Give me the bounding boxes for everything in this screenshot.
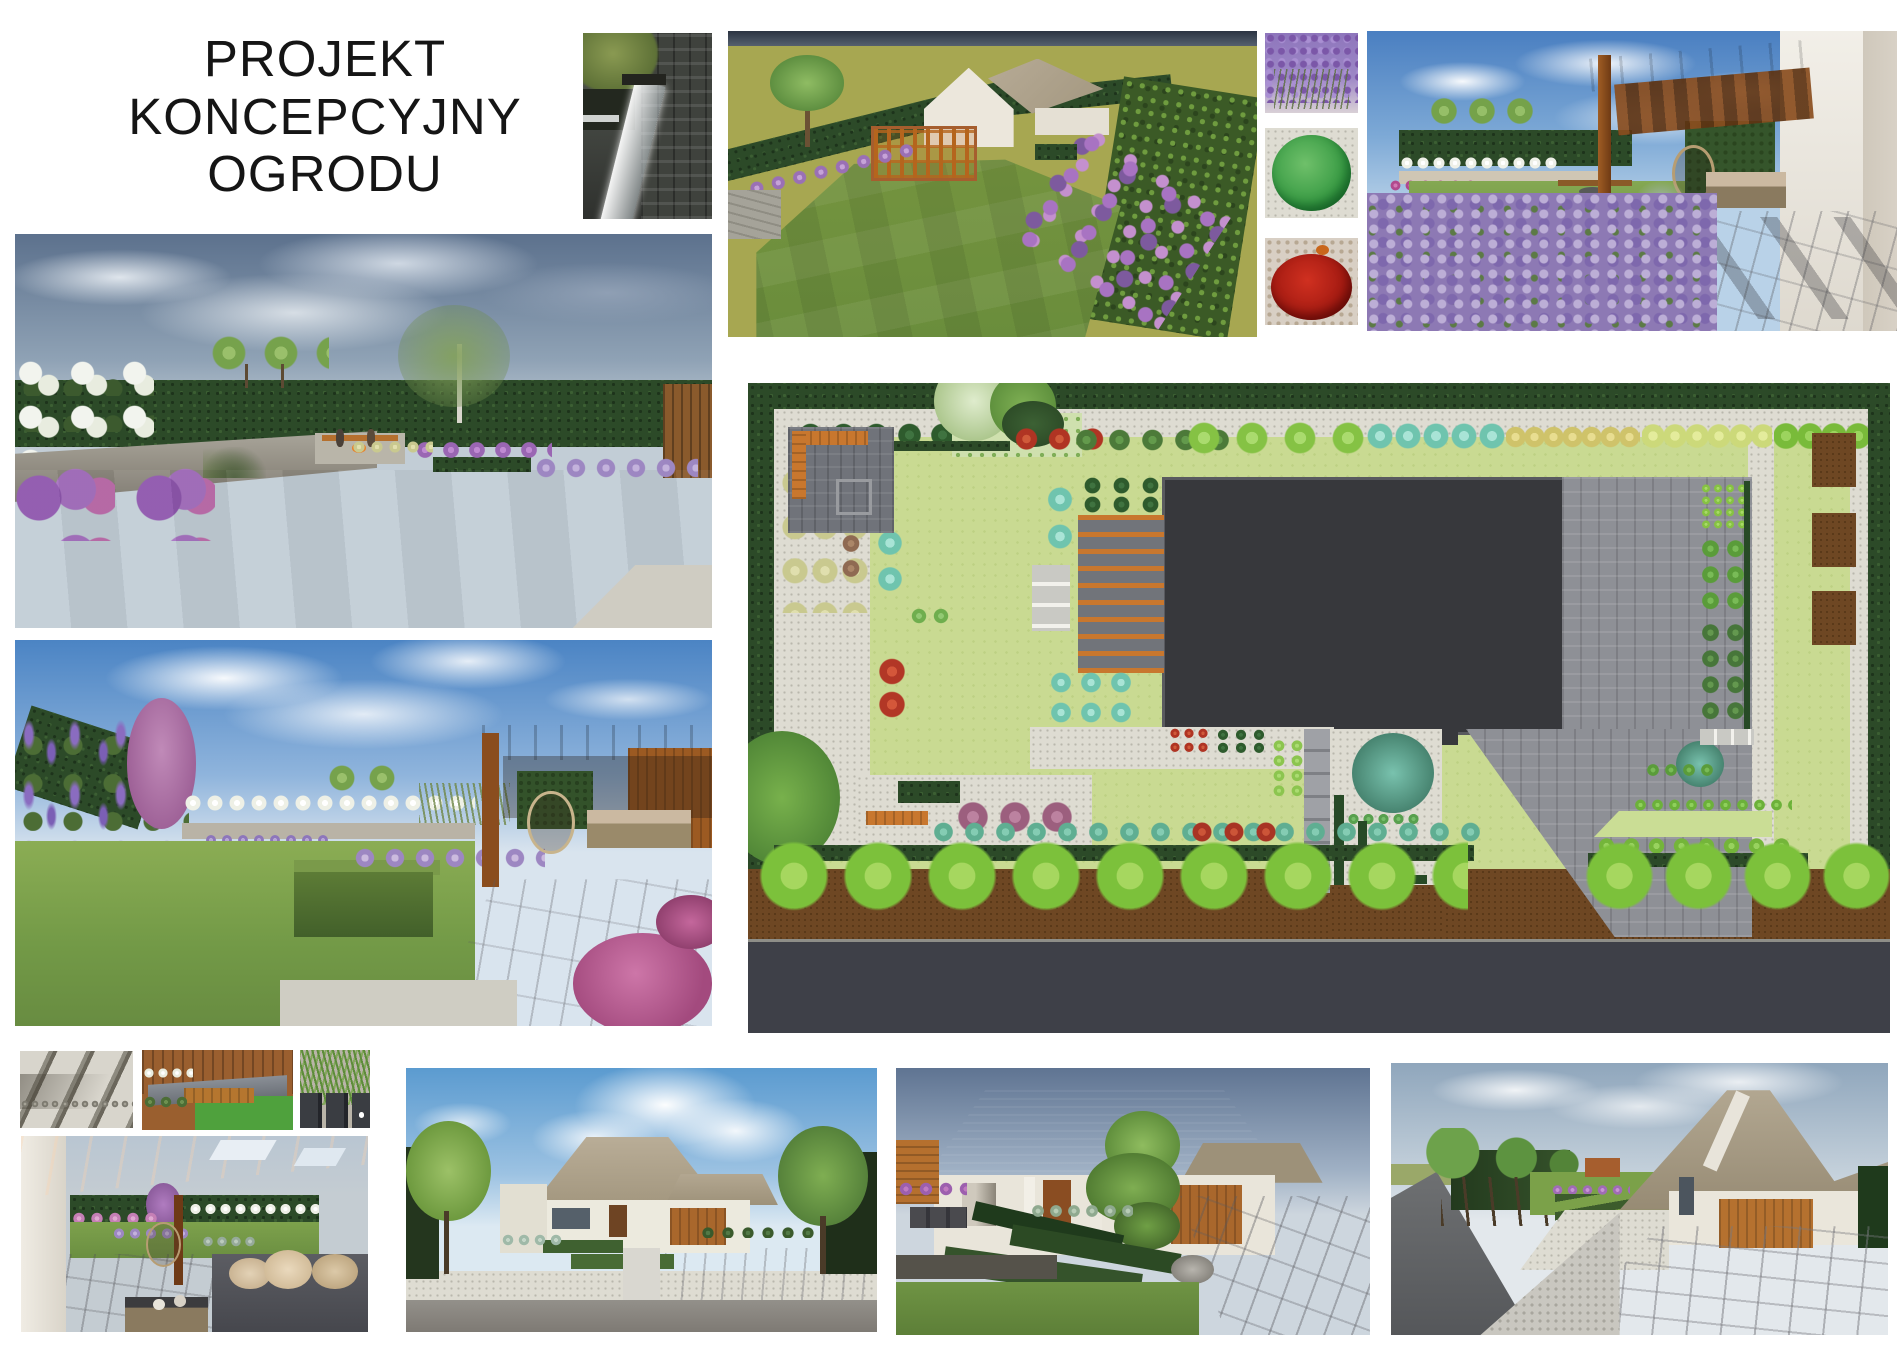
street-trees-right bbox=[1580, 817, 1890, 935]
window bbox=[552, 1208, 590, 1229]
grasses-photo bbox=[300, 1050, 370, 1128]
lavender-stems bbox=[1274, 69, 1348, 109]
bed-square-3 bbox=[1812, 591, 1856, 645]
wood-bench bbox=[184, 1088, 253, 1102]
pebbles bbox=[20, 1099, 133, 1110]
boulder bbox=[1171, 1255, 1214, 1284]
shrubs-2x3 bbox=[1698, 537, 1748, 615]
lavender-field bbox=[1367, 193, 1717, 331]
tree-grid-dark bbox=[1078, 477, 1165, 515]
swatch-lavender bbox=[1265, 33, 1358, 113]
tree-crown bbox=[770, 55, 844, 110]
rattan-sofa bbox=[587, 810, 692, 849]
right-hedge-thin bbox=[1744, 481, 1750, 729]
title-line-2: KONCEPCYJNY bbox=[105, 88, 545, 146]
center-path bbox=[623, 1248, 661, 1301]
teal-col-terrace bbox=[1042, 481, 1078, 555]
dusty-shrub-col bbox=[838, 531, 864, 581]
corner-bench bbox=[1558, 180, 1632, 187]
street-view-render bbox=[1391, 1063, 1888, 1335]
lavender-right bbox=[531, 455, 698, 506]
red-shrub bbox=[1271, 254, 1353, 320]
patio-corner bbox=[728, 190, 781, 239]
garden-pergola-render bbox=[15, 640, 712, 1026]
pillow-2 bbox=[264, 1250, 313, 1289]
road bbox=[406, 1300, 877, 1332]
swatch-red-shrub bbox=[1265, 238, 1358, 325]
bench-planter-photo bbox=[142, 1050, 293, 1130]
window-slot bbox=[1679, 1177, 1694, 1215]
tree-trunks bbox=[245, 364, 301, 388]
swatch-boxwood bbox=[1265, 128, 1358, 218]
trough-edge bbox=[583, 115, 619, 122]
pocket-hedge bbox=[898, 781, 960, 803]
street-trees-left bbox=[752, 817, 1468, 935]
pillow-3 bbox=[312, 1254, 357, 1289]
egg-chair bbox=[527, 791, 575, 855]
hedge-cube bbox=[1035, 144, 1077, 159]
blue-grasses bbox=[1029, 1202, 1133, 1229]
right-tree-trunk bbox=[820, 1216, 826, 1274]
pergola-hint bbox=[1585, 1158, 1620, 1177]
boxwood-ball bbox=[1272, 135, 1350, 211]
dark-gravel-path bbox=[896, 1255, 1057, 1279]
front-ball-row-small bbox=[1632, 797, 1792, 813]
grasses-2x4 bbox=[1698, 621, 1748, 725]
drive-hedge-row bbox=[698, 1226, 820, 1238]
bright-ball-row bbox=[1180, 415, 1370, 461]
top-fascia bbox=[728, 31, 1257, 46]
plan-terrace-deck bbox=[1078, 515, 1164, 673]
spout-ledge bbox=[622, 74, 666, 85]
title-line-3: OGRODU bbox=[105, 145, 545, 203]
cup-2 bbox=[174, 1295, 186, 1307]
plan-hedge-top bbox=[748, 383, 1890, 409]
ball-trees bbox=[322, 760, 406, 799]
ball-trees bbox=[1425, 91, 1542, 133]
left-tree-crown bbox=[406, 1121, 491, 1221]
front-shrub-cluster bbox=[1644, 761, 1716, 779]
gravel-path bbox=[280, 980, 517, 1026]
person-1 bbox=[336, 429, 344, 447]
garden-firepit-render bbox=[15, 234, 712, 628]
coffee-table bbox=[125, 1297, 208, 1332]
aerial-render bbox=[728, 31, 1257, 337]
plan-house bbox=[1162, 477, 1566, 735]
teal-column-left bbox=[872, 525, 908, 597]
house-front-render bbox=[406, 1068, 877, 1332]
skylight-gap bbox=[210, 1140, 277, 1160]
balls-grid-4x4 bbox=[1700, 483, 1748, 531]
title-line-1: PROJEKT bbox=[105, 30, 545, 88]
plan-firepit bbox=[836, 479, 872, 515]
green-cross-plants bbox=[908, 605, 952, 649]
red-column-left bbox=[870, 655, 914, 721]
sofa-set bbox=[1706, 172, 1786, 208]
blue-grasses bbox=[500, 1232, 566, 1253]
steps-photo bbox=[20, 1051, 133, 1128]
front-door bbox=[609, 1205, 628, 1237]
dark-grid bbox=[1214, 729, 1270, 755]
left-tree-trunk bbox=[444, 1211, 450, 1274]
house-driveway-render bbox=[896, 1068, 1370, 1335]
dark-planters bbox=[300, 1093, 370, 1128]
green-foliage bbox=[142, 1094, 187, 1130]
plan-road bbox=[748, 939, 1890, 1033]
light-grid bbox=[1270, 739, 1306, 797]
gray-planters bbox=[910, 1207, 967, 1228]
terrace-render bbox=[1367, 31, 1897, 331]
blue-grass-planter bbox=[201, 1234, 257, 1252]
bed-square-2 bbox=[1812, 513, 1856, 567]
teal-grid-lower bbox=[1046, 669, 1138, 729]
orange-accent bbox=[1316, 245, 1329, 255]
garden-plan bbox=[748, 383, 1890, 1033]
pergola-post bbox=[482, 733, 499, 887]
teal-spiky-row bbox=[1366, 413, 1506, 459]
waterfall-photo bbox=[583, 33, 712, 219]
pergola-seating-render bbox=[21, 1136, 368, 1332]
hedge-line-patio bbox=[894, 441, 1010, 451]
page-title: PROJEKT KONCEPCYJNY OGRODU bbox=[105, 30, 545, 203]
stepping-stones bbox=[1032, 565, 1070, 631]
bed-square-1 bbox=[1812, 433, 1856, 487]
front-stones bbox=[1700, 729, 1754, 745]
yellow-star-row bbox=[1506, 417, 1640, 457]
red-group bbox=[1168, 727, 1210, 755]
right-tree-crown bbox=[778, 1126, 867, 1226]
plan-bench-left bbox=[792, 431, 806, 499]
tan-grasses bbox=[350, 439, 434, 459]
front-lawn bbox=[896, 1282, 1199, 1335]
grass-tuft-row bbox=[1642, 413, 1772, 459]
concept-board: PROJEKT KONCEPCYJNY OGRODU bbox=[0, 0, 1897, 1347]
paving-shadows bbox=[1685, 217, 1897, 319]
white-hydrangea-band bbox=[188, 1201, 320, 1219]
birch-crown bbox=[398, 305, 510, 407]
